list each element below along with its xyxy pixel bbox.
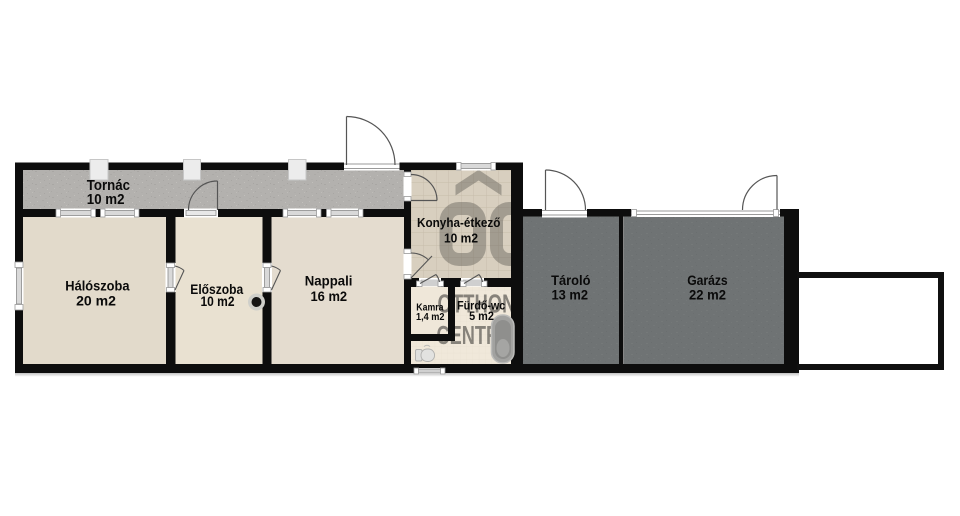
svg-text:Nappali: Nappali [305,274,353,289]
svg-text:Hálószoba: Hálószoba [65,278,130,293]
svg-text:13 m2: 13 m2 [552,288,589,303]
svg-text:5 m2: 5 m2 [469,309,494,323]
svg-text:20 m2: 20 m2 [76,293,116,308]
svg-text:10 m2: 10 m2 [444,230,478,245]
svg-text:Konyha-étkező: Konyha-étkező [417,215,501,230]
svg-text:10 m2: 10 m2 [87,192,125,208]
svg-text:1,4 m2: 1,4 m2 [416,312,445,323]
svg-text:16 m2: 16 m2 [311,289,348,304]
svg-text:Tároló: Tároló [551,273,590,288]
svg-text:Garázs: Garázs [687,273,728,288]
svg-text:22 m2: 22 m2 [689,288,726,303]
svg-text:10 m2: 10 m2 [201,294,235,309]
